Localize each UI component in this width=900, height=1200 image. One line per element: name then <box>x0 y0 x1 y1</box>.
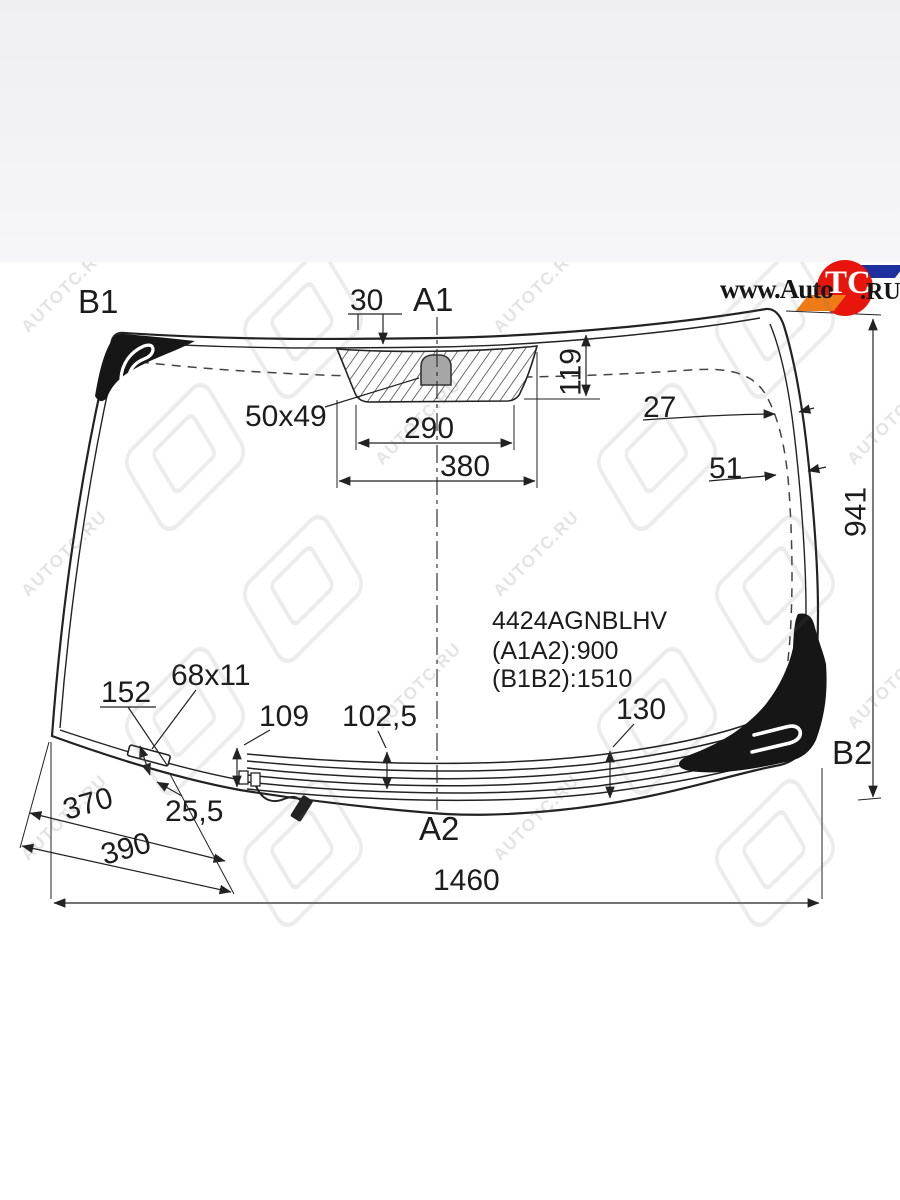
label-109: 109 <box>259 700 309 733</box>
part-code: 4424AGNBLHV <box>492 607 667 635</box>
windshield-drawing: B1 A1 30 50x49 290 380 119 27 51 941 442… <box>0 0 900 1200</box>
part-dim-b1b2: (B1B2):1510 <box>492 665 632 693</box>
label-27: 27 <box>643 391 676 424</box>
label-370: 370 <box>59 781 116 827</box>
windshield-diagram: B1 A1 30 50x49 290 380 119 27 51 941 442… <box>0 0 900 1200</box>
label-1460: 1460 <box>433 864 500 897</box>
mirror-mount <box>421 355 451 385</box>
logo-text-suffix: .RU <box>860 279 900 306</box>
label-51: 51 <box>709 452 742 485</box>
label-380: 380 <box>440 450 490 483</box>
label-130: 130 <box>616 693 666 726</box>
label-a2: A2 <box>419 810 459 847</box>
label-68x11: 68x11 <box>171 659 251 692</box>
label-102-5: 102,5 <box>342 700 417 733</box>
label-b1: B1 <box>78 283 118 320</box>
site-logo: www.Auto TC .RU <box>713 256 900 320</box>
part-dim-a1a2: (A1A2):900 <box>492 637 618 665</box>
label-25-5: 25,5 <box>165 795 223 828</box>
label-30: 30 <box>350 284 383 317</box>
label-b2: B2 <box>832 734 872 771</box>
label-152: 152 <box>101 676 151 709</box>
label-290: 290 <box>404 412 454 445</box>
label-a1: A1 <box>413 281 453 318</box>
logo-text-prefix: www.Auto <box>720 274 833 305</box>
label-119: 119 <box>555 348 588 396</box>
label-390: 390 <box>97 826 154 872</box>
label-50x49: 50x49 <box>245 400 327 433</box>
label-941: 941 <box>840 487 873 537</box>
product-image-page: B1 A1 30 50x49 290 380 119 27 51 941 442… <box>0 0 900 1200</box>
